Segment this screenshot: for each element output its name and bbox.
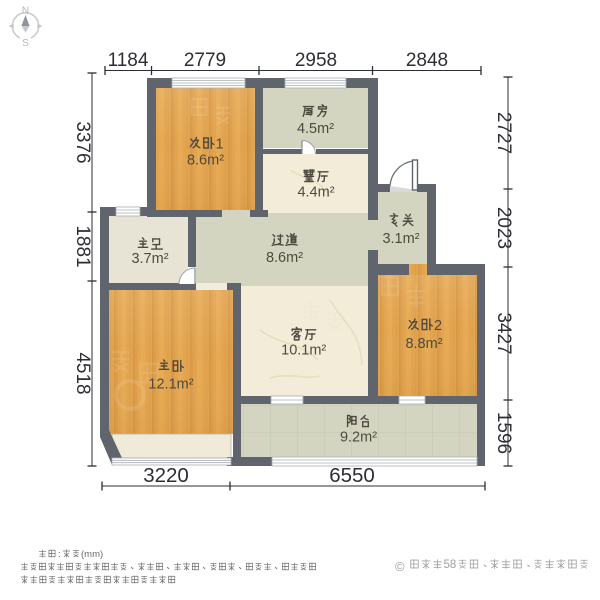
svg-text:2958: 2958 <box>295 50 337 71</box>
svg-text:2023: 2023 <box>493 207 514 249</box>
svg-text:2779: 2779 <box>184 50 226 71</box>
svg-text:3376: 3376 <box>72 121 93 163</box>
svg-text:N: N <box>22 6 29 17</box>
svg-text:4.5m²: 4.5m² <box>297 121 334 137</box>
svg-text:2727: 2727 <box>493 112 514 154</box>
svg-text:2: 2 <box>434 318 442 334</box>
svg-text:8.6m²: 8.6m² <box>187 153 224 169</box>
svg-text:8.6m²: 8.6m² <box>266 250 303 266</box>
svg-text:1881: 1881 <box>72 225 93 267</box>
svg-text:©: © <box>395 559 405 574</box>
svg-text:6550: 6550 <box>329 464 375 487</box>
svg-text::: : <box>58 549 61 560</box>
svg-text:10.1m²: 10.1m² <box>281 343 326 359</box>
svg-text:4518: 4518 <box>72 352 93 394</box>
svg-text:12.1m²: 12.1m² <box>148 377 193 393</box>
svg-text:S: S <box>22 38 29 49</box>
svg-text:4.4m²: 4.4m² <box>297 185 334 201</box>
svg-text:(mm): (mm) <box>81 549 103 560</box>
svg-text:58: 58 <box>444 559 457 571</box>
svg-text:9.2m²: 9.2m² <box>340 430 377 446</box>
svg-text:3427: 3427 <box>493 312 514 354</box>
svg-text:1: 1 <box>215 137 223 153</box>
svg-text:3.1m²: 3.1m² <box>382 231 419 247</box>
svg-text:3220: 3220 <box>143 464 189 487</box>
svg-text:1184: 1184 <box>108 50 149 71</box>
svg-text:2848: 2848 <box>406 50 448 71</box>
svg-text:3.7m²: 3.7m² <box>131 251 168 267</box>
svg-text:1596: 1596 <box>493 412 514 454</box>
svg-text:8.8m²: 8.8m² <box>405 336 442 352</box>
